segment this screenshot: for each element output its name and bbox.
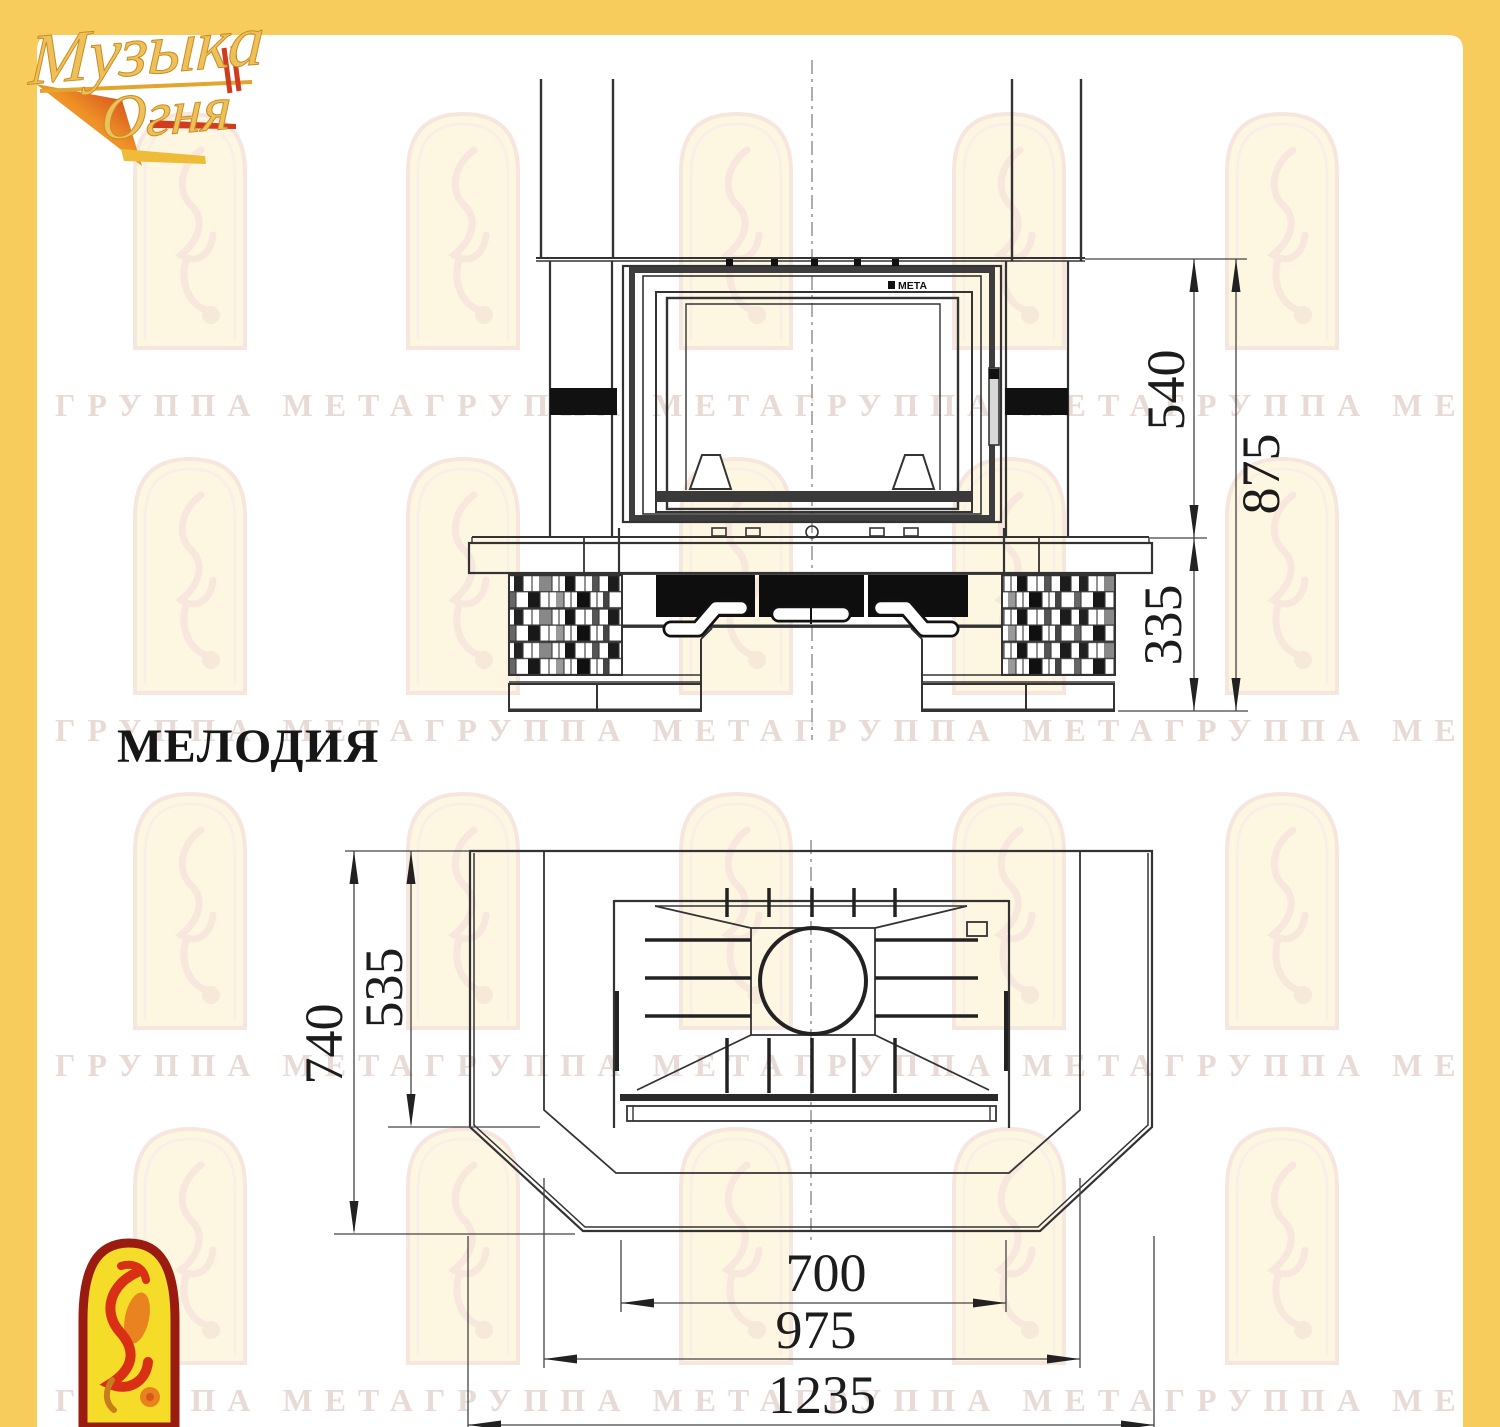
- svg-text:МЕЛОДИЯ: МЕЛОДИЯ: [117, 720, 380, 773]
- svg-text:540: 540: [1136, 350, 1196, 431]
- svg-text:МЕТА: МЕТА: [898, 280, 928, 292]
- svg-text:700: 700: [786, 1243, 867, 1303]
- svg-text:875: 875: [1231, 434, 1291, 515]
- svg-text:740: 740: [294, 1004, 354, 1085]
- svg-text:535: 535: [354, 948, 414, 1029]
- svg-text:1235: 1235: [768, 1365, 876, 1425]
- svg-text:975: 975: [776, 1300, 857, 1360]
- svg-text:Огня: Огня: [100, 72, 234, 154]
- svg-text:335: 335: [1133, 585, 1193, 666]
